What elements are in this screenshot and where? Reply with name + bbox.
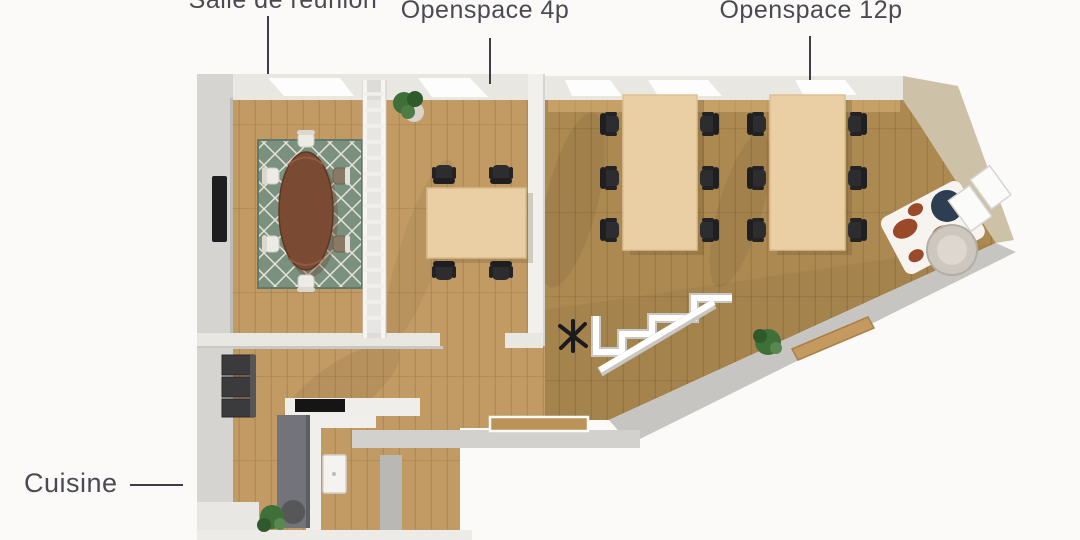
oval-meeting-table xyxy=(279,152,333,270)
meeting-chair xyxy=(262,235,279,253)
office-chair xyxy=(600,166,619,190)
office-chair xyxy=(432,261,456,280)
wall-segment-hall-top xyxy=(197,333,440,348)
meeting-chair xyxy=(262,167,279,185)
tall-dark-cabinets xyxy=(222,355,256,417)
wall-tv xyxy=(212,176,227,242)
label-openspace-12p: Openspace 12p xyxy=(719,0,902,25)
office-chair xyxy=(848,166,867,190)
cooktop xyxy=(295,399,345,412)
office-chair xyxy=(747,166,766,190)
island-edge xyxy=(306,415,310,528)
office-chair xyxy=(432,165,456,184)
leader-line-cuisine xyxy=(130,484,183,486)
desk-6p-b xyxy=(770,95,845,250)
entrance-door xyxy=(490,417,588,431)
label-salle-de-reunion: Salle de réunion xyxy=(189,0,378,15)
leader-line-openspace-4p xyxy=(489,38,491,84)
wall-segment-hall-top xyxy=(505,333,543,348)
meeting-chair xyxy=(333,235,350,253)
meeting-chair xyxy=(297,275,315,292)
office-chair xyxy=(489,165,513,184)
office-chair xyxy=(700,166,719,190)
office-chair xyxy=(848,112,867,136)
wall-edge xyxy=(197,346,443,349)
meeting-chair xyxy=(297,130,315,147)
label-cuisine: Cuisine xyxy=(24,468,118,499)
office-chair xyxy=(489,261,513,280)
wall-edge xyxy=(230,98,233,336)
floorplan-drawing xyxy=(0,0,1080,540)
leader-line-openspace-12p xyxy=(809,36,811,80)
office-chair xyxy=(600,218,619,242)
office-chair xyxy=(700,112,719,136)
wall-segment-bottom-cut xyxy=(197,530,472,540)
lounge-armchair xyxy=(927,225,977,275)
wall-sink xyxy=(323,455,346,493)
office-chair xyxy=(600,112,619,136)
office-chair xyxy=(747,112,766,136)
label-openspace-4p: Openspace 4p xyxy=(401,0,570,25)
desk-6p-a xyxy=(623,95,697,250)
wall-pillar xyxy=(380,455,402,533)
office-chair xyxy=(747,218,766,242)
glass-partition-ladder xyxy=(362,80,387,338)
office-chair xyxy=(700,218,719,242)
wall-segment-bottom xyxy=(352,430,640,448)
floorplan-stage: Salle de réunion Openspace 4p Openspace … xyxy=(0,0,1080,540)
desk-4p xyxy=(427,188,526,258)
meeting-chair xyxy=(333,167,350,185)
leader-line-salle-de-reunion xyxy=(267,16,269,74)
wall-edge xyxy=(543,74,545,346)
office-chair xyxy=(848,218,867,242)
